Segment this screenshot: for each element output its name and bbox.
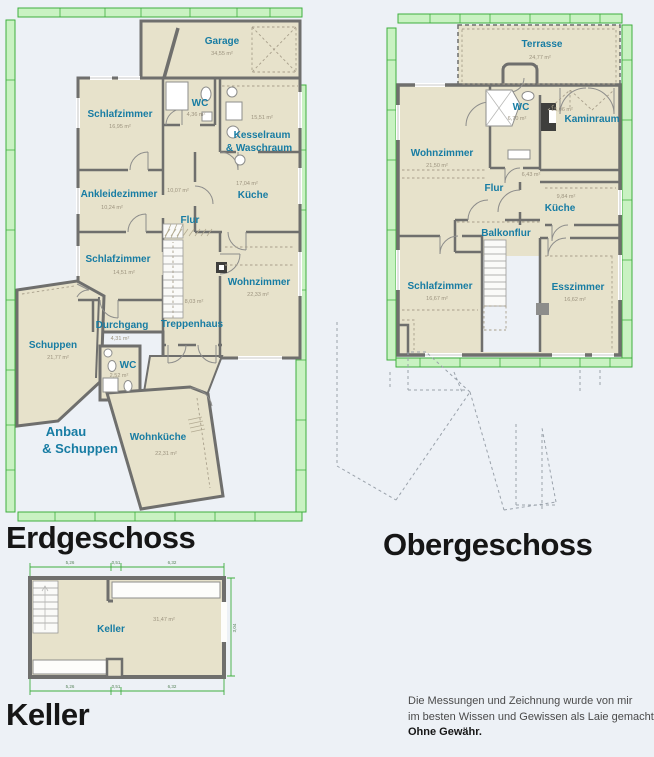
keller-dim-top-3: 6,32: [168, 560, 177, 565]
room-label-kaminraum: Kaminraum: [564, 114, 619, 125]
floorplan-page: Garage 34,55 m² Schlafzimmer 16,95 m² WC…: [0, 0, 654, 757]
room-area-wohnzimmer: 22,33 m²: [247, 292, 269, 298]
room-label-treppenhaus: Treppenhaus: [161, 319, 224, 330]
room-area-og-kueche: 9,84 m²: [557, 194, 576, 200]
room-area-schlafzimmer-1: 16,95 m²: [109, 124, 131, 130]
keller-dim-top-2: 0,51: [112, 560, 121, 565]
keller-dim-bottom-3: 6,32: [168, 684, 177, 689]
room-area-flur: 10,07 m²: [167, 188, 189, 194]
room-label-og-schlafzimmer: Schlafzimmer: [407, 281, 472, 292]
room-area-wc-2: 2,52 m²: [110, 373, 129, 379]
keller-dim-top-1: 5,26: [66, 560, 75, 565]
room-area-kesselraum: 15,51 m²: [251, 115, 273, 121]
room-label-esszimmer: Esszimmer: [552, 282, 605, 293]
room-label-flur: Flur: [181, 215, 200, 226]
room-label-durchgang: Durchgang: [96, 320, 149, 331]
keller-dim-bottom-1: 5,26: [66, 684, 75, 689]
room-area-og-flur: 6,43 m²: [522, 172, 541, 178]
room-label-kesselraum-2: & Waschraum: [226, 143, 292, 154]
room-area-keller: 31,47 m²: [153, 617, 175, 623]
room-area-og-wohnzimmer: 21,50 m²: [426, 163, 448, 169]
room-label-schlafzimmer-1: Schlafzimmer: [87, 109, 152, 120]
room-area-schlafzimmer-2: 14,51 m²: [113, 270, 135, 276]
room-area-og-schlafzimmer: 16,67 m²: [426, 296, 448, 302]
title-keller: Keller: [6, 697, 89, 733]
room-area-garage: 34,55 m²: [211, 51, 233, 57]
disclaimer-line-1: Die Messungen und Zeichnung wurde von mi…: [408, 694, 654, 710]
disclaimer-line-2: im besten Wissen und Gewissen als Laie g…: [408, 710, 654, 726]
title-obergeschoss: Obergeschoss: [383, 527, 592, 563]
room-area-og-wc: 6,70 m²: [508, 116, 527, 122]
erdgeschoss-stairs: [163, 224, 183, 318]
room-label-og-wc: WC: [513, 102, 530, 113]
room-area-durchgang: 4,31 m²: [111, 336, 130, 342]
title-erdgeschoss: Erdgeschoss: [6, 520, 195, 556]
keller-plan: 5,26 0,51 6,32 5,26 0,51 6,32 3,04 3,04 …: [30, 560, 237, 695]
room-area-terrasse: 24,77 m²: [529, 55, 551, 61]
keller-stairs: [33, 581, 58, 633]
room-label-anbau-2: & Schuppen: [42, 441, 118, 456]
room-label-keller: Keller: [97, 624, 125, 635]
keller-dim-bottom-2: 0,51: [112, 684, 121, 689]
room-label-balkonflur: Balkonflur: [481, 228, 531, 239]
erdgeschoss-plan: Garage 34,55 m² Schlafzimmer 16,95 m² WC…: [17, 21, 300, 509]
room-label-kueche: Küche: [238, 190, 269, 201]
keller-dim-right: 3,04: [232, 623, 237, 632]
disclaimer: Die Messungen und Zeichnung wurde von mi…: [408, 694, 654, 741]
room-label-garage: Garage: [205, 36, 240, 47]
room-label-wohnkueche: Wohnküche: [130, 432, 187, 443]
room-label-og-kueche: Küche: [545, 203, 576, 214]
room-label-wc: WC: [192, 98, 209, 109]
room-label-og-wohnzimmer: Wohnzimmer: [411, 148, 474, 159]
room-label-anbau: Anbau: [46, 424, 87, 439]
room-label-wohnzimmer: Wohnzimmer: [228, 277, 291, 288]
room-area-treppenhaus: 8,03 m²: [185, 299, 204, 305]
floorplan-canvas: Garage 34,55 m² Schlafzimmer 16,95 m² WC…: [0, 0, 654, 757]
room-label-og-flur: Flur: [485, 183, 504, 194]
room-area-kaminraum: 15,06 m²: [551, 107, 573, 113]
room-label-schuppen: Schuppen: [29, 340, 77, 351]
disclaimer-line-3: Ohne Gewähr.: [408, 725, 654, 741]
room-label-terrasse: Terrasse: [522, 39, 563, 50]
room-area-ankleidezimmer: 10,24 m²: [101, 205, 123, 211]
room-label-wc-2: WC: [120, 360, 137, 371]
room-area-kueche: 17,04 m²: [236, 181, 258, 187]
room-label-kesselraum: Kesselraum: [234, 130, 291, 141]
room-area-esszimmer: 16,62 m²: [564, 297, 586, 303]
room-area-wc: 4,36 m²: [187, 112, 206, 118]
room-label-ankleidezimmer: Ankleidezimmer: [81, 189, 158, 200]
room-label-schlafzimmer-2: Schlafzimmer: [85, 254, 150, 265]
room-area-wohnkueche: 22,31 m²: [155, 451, 177, 457]
obergeschoss-plan: Terrasse 24,77 m² Wohnzimmer 21,50 m² WC…: [398, 25, 620, 355]
room-area-schuppen: 21,77 m²: [47, 355, 69, 361]
